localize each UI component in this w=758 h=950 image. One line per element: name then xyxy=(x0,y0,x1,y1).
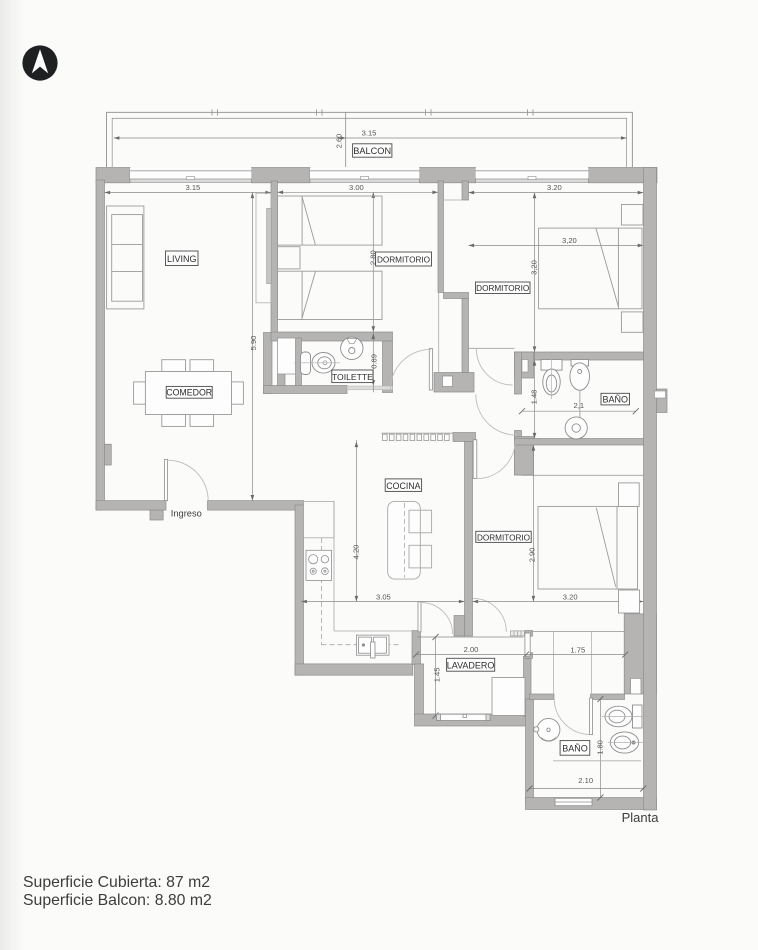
svg-text:LAVADERO: LAVADERO xyxy=(447,660,495,670)
svg-text:3.20: 3.20 xyxy=(563,592,578,601)
svg-text:1.45: 1.45 xyxy=(432,668,441,683)
svg-text:3.00: 3.00 xyxy=(349,183,364,192)
svg-text:3.15: 3.15 xyxy=(362,128,377,137)
svg-text:2.10: 2.10 xyxy=(578,776,593,785)
svg-text:COMEDOR: COMEDOR xyxy=(166,388,212,398)
svg-text:TOILETTE: TOILETTE xyxy=(332,372,373,382)
svg-text:Ingreso: Ingreso xyxy=(171,509,202,519)
svg-text:4.20: 4.20 xyxy=(351,545,360,560)
svg-text:5.90: 5.90 xyxy=(249,336,258,351)
svg-text:3.15: 3.15 xyxy=(186,183,201,192)
svg-text:3.05: 3.05 xyxy=(376,592,391,601)
svg-text:0.89: 0.89 xyxy=(369,354,378,369)
svg-text:2.90: 2.90 xyxy=(528,548,537,563)
svg-text:LIVING: LIVING xyxy=(167,254,197,264)
svg-text:DORMITORIO: DORMITORIO xyxy=(377,256,430,265)
svg-text:3.20: 3.20 xyxy=(547,183,562,192)
svg-text:Planta: Planta xyxy=(622,810,660,825)
svg-text:Superficie Balcon: 8.80 m2: Superficie Balcon: 8.80 m2 xyxy=(23,892,212,909)
svg-text:3,20: 3,20 xyxy=(562,236,577,245)
svg-text:1.80: 1.80 xyxy=(595,740,604,755)
svg-text:BAÑO: BAÑO xyxy=(562,744,588,754)
svg-text:1.75: 1.75 xyxy=(570,645,585,654)
svg-text:1.48: 1.48 xyxy=(529,390,538,405)
svg-text:BALCON: BALCON xyxy=(353,146,391,156)
svg-text:3,20: 3,20 xyxy=(530,260,539,275)
svg-text:2.00: 2.00 xyxy=(464,645,479,654)
svg-text:Superficie Cubierta: 87 m2: Superficie Cubierta: 87 m2 xyxy=(23,874,210,891)
svg-text:2.60: 2.60 xyxy=(335,134,344,149)
svg-text:DORMITORIO: DORMITORIO xyxy=(477,533,530,542)
svg-text:2,1: 2,1 xyxy=(574,401,585,410)
svg-text:BAÑO: BAÑO xyxy=(602,395,628,405)
svg-text:DORMITORIO: DORMITORIO xyxy=(476,284,529,293)
svg-text:COCINA: COCINA xyxy=(386,481,420,491)
